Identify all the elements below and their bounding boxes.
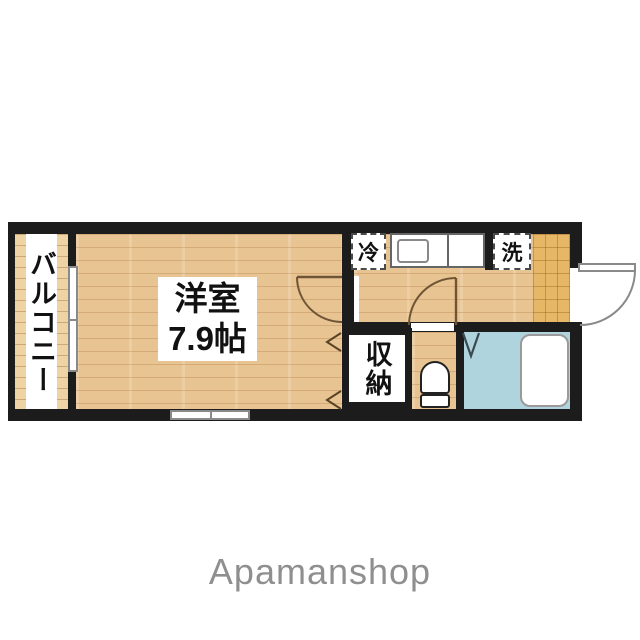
bathtub-icon bbox=[520, 334, 569, 407]
toilet-door-arc bbox=[407, 276, 459, 328]
balcony-window-divider bbox=[70, 319, 76, 321]
closet-folding-door-icon bbox=[325, 331, 343, 411]
storage-closet: 収納 bbox=[342, 328, 412, 409]
wall-left bbox=[8, 222, 15, 421]
wall-bottom bbox=[8, 409, 582, 421]
room-label-box: 洋室 7.9帖 bbox=[158, 277, 257, 361]
counter-divider bbox=[447, 235, 449, 266]
entryway-tile-floor bbox=[533, 234, 570, 322]
storage-label: 収納 bbox=[358, 338, 397, 400]
wall-kitchen-stub bbox=[485, 222, 493, 270]
kitchen-sink bbox=[397, 239, 429, 263]
room-size-label: 7.9帖 bbox=[168, 319, 247, 359]
room-door-threshold bbox=[354, 276, 359, 322]
south-window-divider bbox=[210, 412, 212, 418]
refrigerator-label: 冷 bbox=[358, 237, 379, 267]
room-name-label: 洋室 bbox=[175, 279, 241, 319]
entry-door-arc bbox=[576, 266, 640, 330]
floorplan-canvas: バルコニー 洋室 7.9帖 冷 洗 収納 bbox=[0, 0, 640, 640]
balcony-window bbox=[68, 266, 78, 372]
brand-logo: Apamanshop bbox=[0, 551, 640, 593]
kitchen-counter bbox=[390, 233, 485, 268]
washer-label: 洗 bbox=[502, 237, 523, 267]
bath-folding-door-icon bbox=[461, 331, 481, 359]
refrigerator-space: 冷 bbox=[351, 233, 386, 270]
room-door-arc bbox=[295, 275, 345, 325]
toilet-tank-icon bbox=[420, 394, 450, 408]
toilet-icon bbox=[420, 361, 450, 394]
south-window bbox=[170, 410, 250, 420]
balcony-label: バルコニー bbox=[26, 238, 57, 406]
washer-space: 洗 bbox=[493, 233, 531, 270]
